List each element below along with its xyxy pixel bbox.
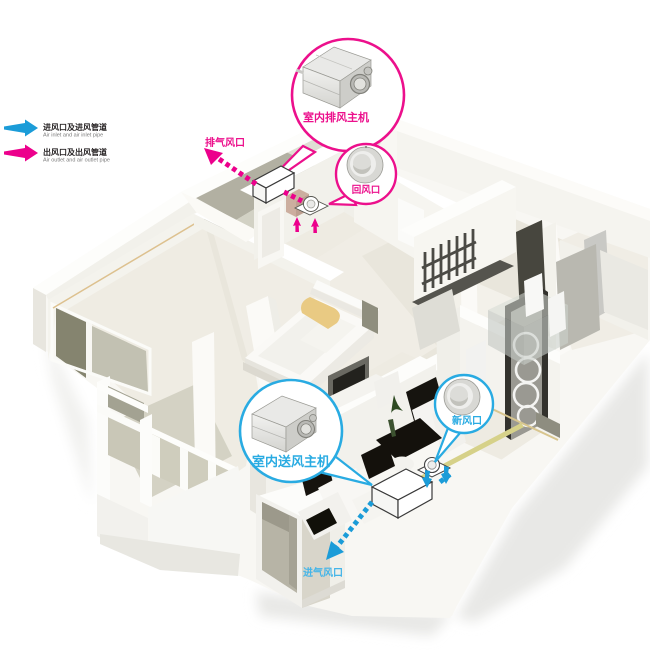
svg-text:室内送风主机: 室内送风主机: [252, 454, 330, 469]
svg-text:排气风口: 排气风口: [205, 136, 245, 149]
svg-text:回风口: 回风口: [352, 185, 381, 196]
svg-text:进风口及进风管道: 进风口及进风管道: [43, 122, 107, 132]
svg-text:出风口及出风管道: 出风口及出风管道: [43, 147, 107, 157]
svg-text:新风口: 新风口: [452, 414, 482, 427]
svg-text:Air outlet and air outlet pipe: Air outlet and air outlet pipe: [43, 158, 110, 164]
svg-text:进气风口: 进气风口: [303, 566, 343, 579]
svg-text:室内排风主机: 室内排风主机: [303, 110, 369, 124]
svg-text:Air inlet and air inlet pipe: Air inlet and air inlet pipe: [43, 133, 103, 139]
